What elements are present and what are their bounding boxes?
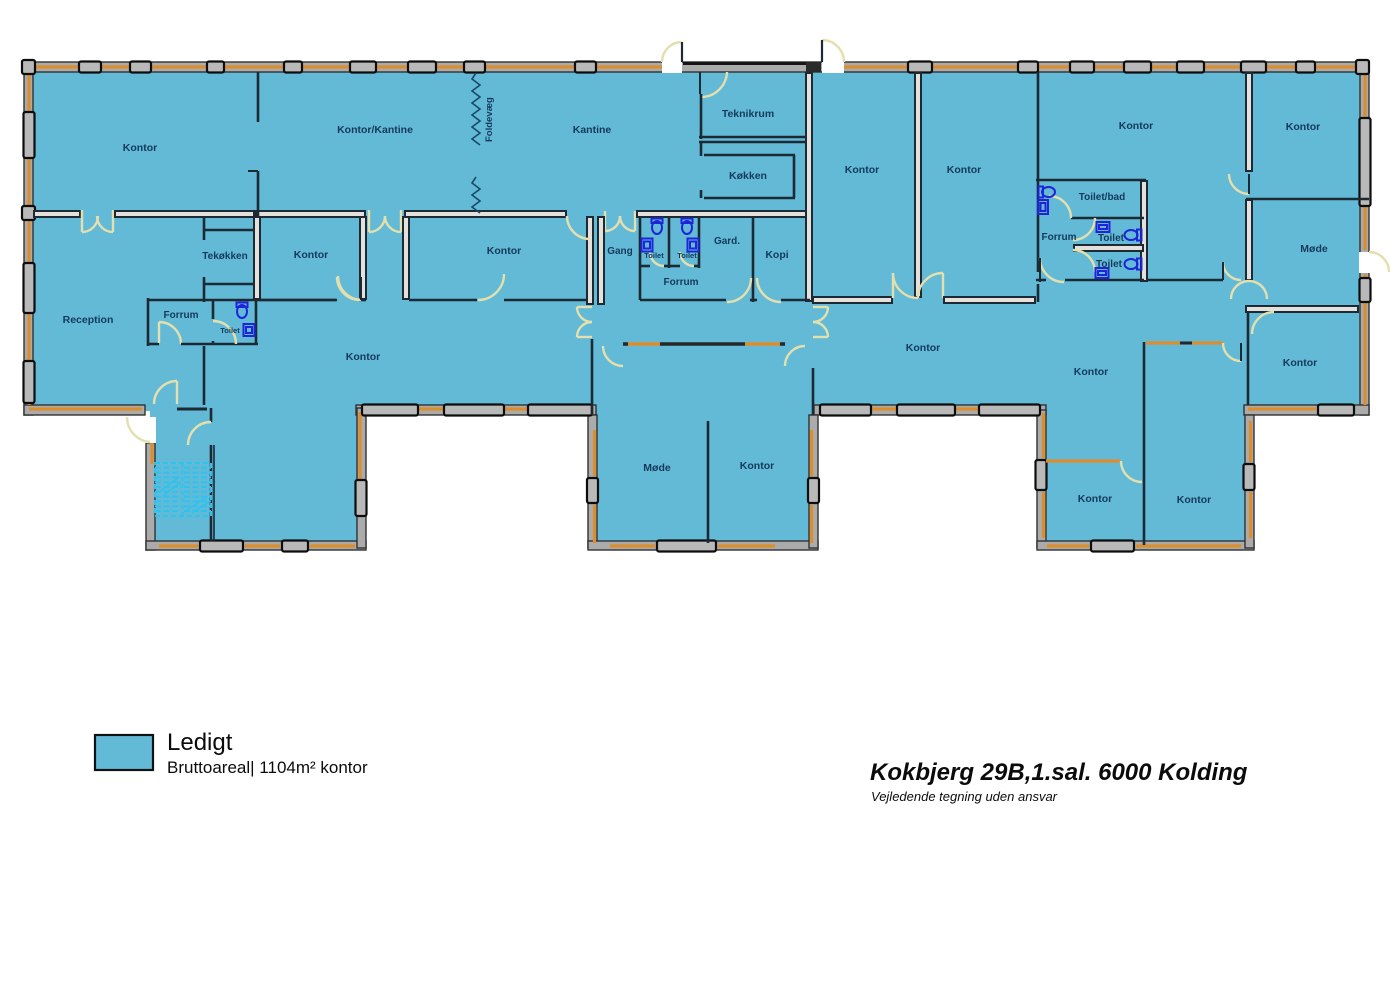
svg-text:Kontor: Kontor [845,164,879,176]
svg-text:Kontor: Kontor [1286,121,1320,133]
svg-text:Kontor/Kantine: Kontor/Kantine [337,124,413,136]
svg-text:Teknikrum: Teknikrum [722,108,774,120]
svg-text:Kontor: Kontor [123,142,157,154]
svg-text:Toilet: Toilet [677,251,697,260]
svg-text:Kontor: Kontor [487,245,521,257]
svg-text:Gang: Gang [607,246,633,257]
svg-text:Ledigt: Ledigt [167,729,233,756]
svg-text:Kontor: Kontor [1119,120,1153,132]
svg-text:Bruttoareal| 1104m² kontor: Bruttoareal| 1104m² kontor [167,758,368,777]
svg-text:Reception: Reception [63,314,114,326]
svg-text:Gard.: Gard. [714,236,740,247]
svg-text:Kontor: Kontor [740,460,774,472]
svg-text:Møde: Møde [1300,243,1328,255]
svg-text:Forrum: Forrum [164,310,199,321]
svg-text:Toilet: Toilet [220,326,240,335]
svg-text:Forrum: Forrum [664,277,699,288]
svg-text:Toilet: Toilet [1096,259,1123,270]
svg-text:Foldevæg: Foldevæg [484,97,495,142]
svg-text:Kantine: Kantine [573,124,612,136]
svg-text:Toilet: Toilet [644,251,664,260]
svg-text:Vejledende tegning uden ansvar: Vejledende tegning uden ansvar [871,789,1058,804]
svg-text:Kontor: Kontor [1078,493,1112,505]
svg-text:Kokbjerg 29B,1.sal. 6000 Koldi: Kokbjerg 29B,1.sal. 6000 Kolding [870,759,1248,786]
svg-text:Forrum: Forrum [1042,232,1077,243]
svg-text:Kontor: Kontor [346,351,380,363]
svg-text:Kontor: Kontor [947,164,981,176]
svg-text:Tekøkken: Tekøkken [202,251,247,262]
svg-text:Kontor: Kontor [1177,494,1211,506]
svg-text:Køkken: Køkken [729,170,767,182]
svg-text:Møde: Møde [643,462,671,474]
svg-text:Kontor: Kontor [294,249,328,261]
svg-text:Kontor: Kontor [1283,357,1317,369]
svg-text:Kontor: Kontor [1074,366,1108,378]
svg-text:Kopi: Kopi [765,249,788,261]
svg-text:Toilet: Toilet [1098,233,1125,244]
svg-text:Kontor: Kontor [906,342,940,354]
svg-text:Toilet/bad: Toilet/bad [1079,192,1125,203]
